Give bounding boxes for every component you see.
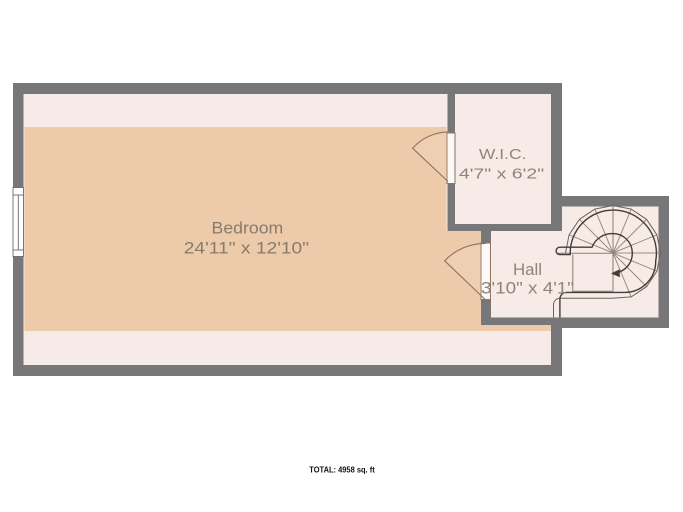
svg-text:4'7" x 6'2": 4'7" x 6'2" bbox=[459, 167, 544, 183]
svg-text:3'10" x 4'1": 3'10" x 4'1" bbox=[481, 280, 574, 298]
svg-text:W.I.C.: W.I.C. bbox=[479, 147, 527, 163]
svg-text:Hall: Hall bbox=[513, 261, 542, 279]
svg-text:TOTAL: 4958 sq. ft: TOTAL: 4958 sq. ft bbox=[309, 464, 375, 474]
svg-text:24'11" x 12'10": 24'11" x 12'10" bbox=[184, 240, 309, 258]
svg-text:Bedroom: Bedroom bbox=[212, 220, 284, 238]
